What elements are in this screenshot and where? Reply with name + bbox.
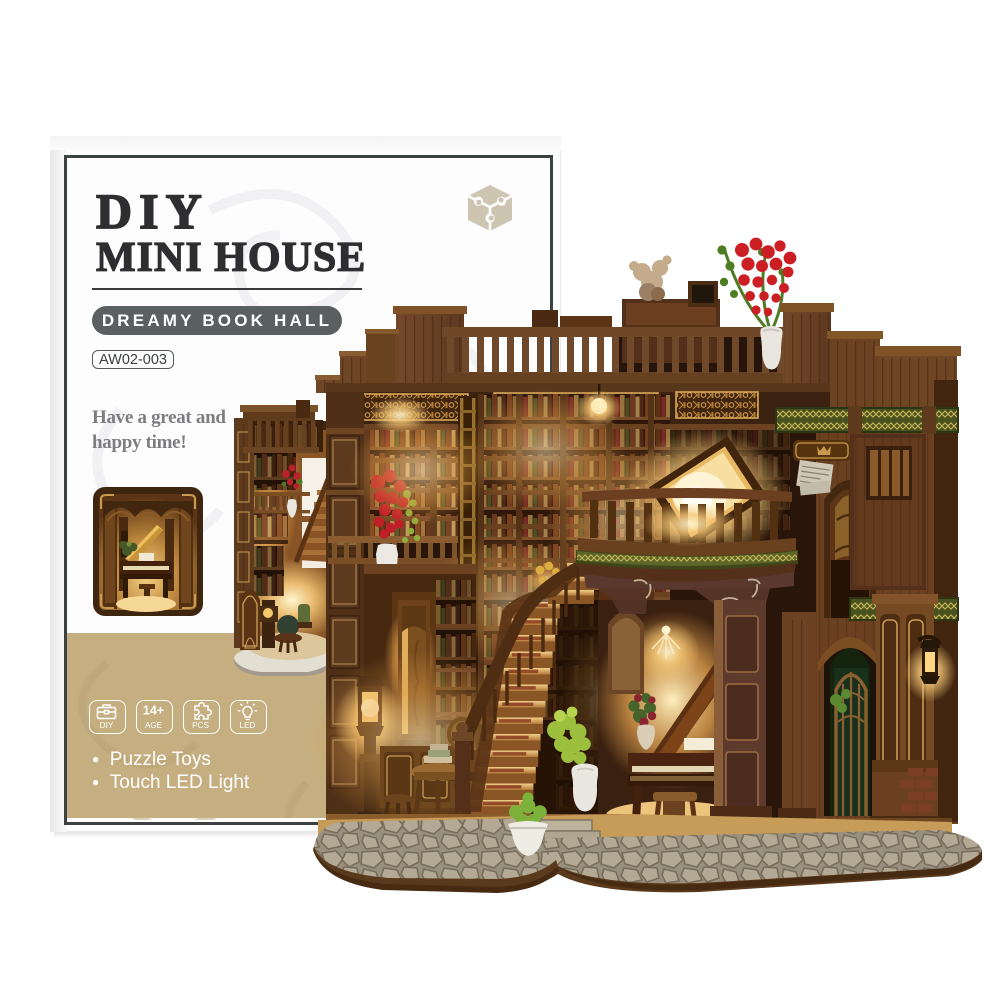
svg-text:AGE: AGE <box>145 721 163 730</box>
svg-text:DIY: DIY <box>100 721 114 730</box>
svg-text:14+: 14+ <box>143 704 164 718</box>
svg-text:PCS: PCS <box>192 721 209 730</box>
